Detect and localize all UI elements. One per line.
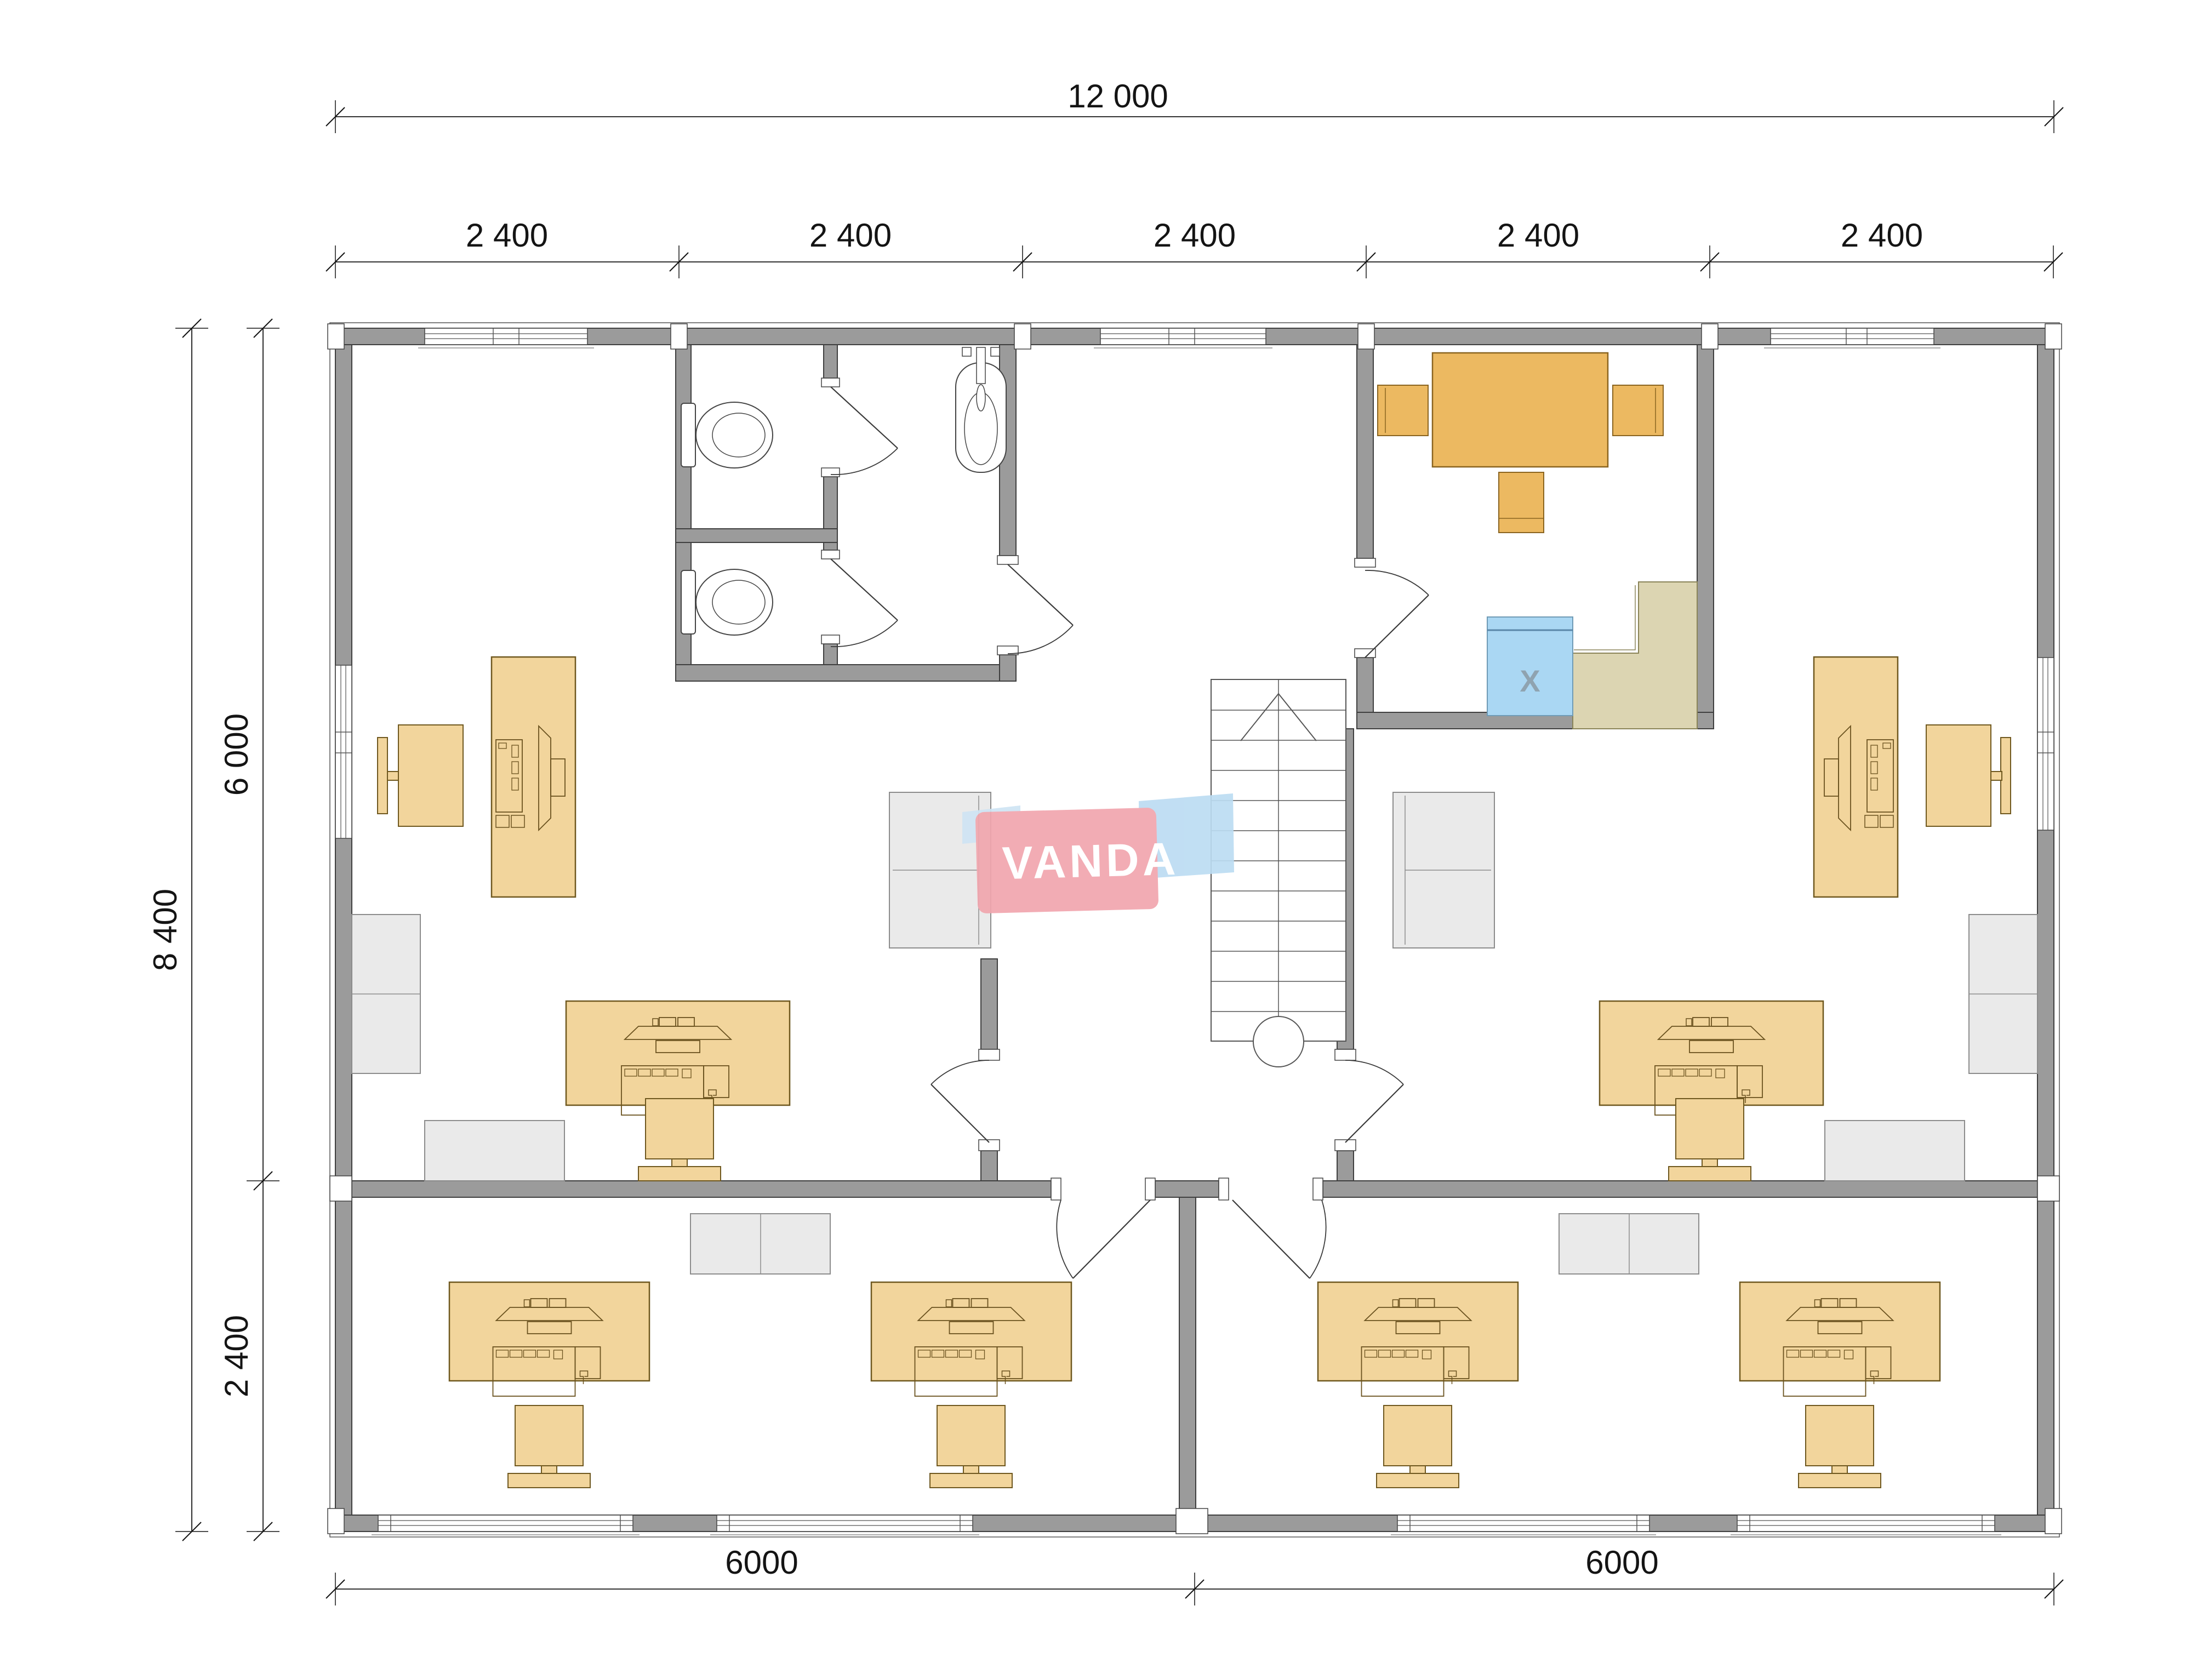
door-jamb xyxy=(997,556,1018,564)
dim-label: 2 400 xyxy=(1841,217,1923,254)
column xyxy=(1176,1508,1208,1534)
sideboard-bottom-left xyxy=(690,1214,830,1274)
window-top-3 xyxy=(1771,328,1934,345)
wall-bottom-divider xyxy=(1179,1197,1196,1515)
wall-wc-bottom xyxy=(676,665,1016,681)
window-right xyxy=(2037,658,2054,830)
window-bottom-1 xyxy=(378,1515,633,1532)
door-jamb xyxy=(1313,1178,1323,1200)
desk-bottomleft-2 xyxy=(871,1282,1071,1381)
door-wc-stall-2 xyxy=(831,559,898,647)
stairs-layer xyxy=(1211,679,1346,1067)
meeting-chair xyxy=(1499,472,1544,533)
window-bottom-3 xyxy=(1391,1515,1656,1535)
kitchen-counter-edge xyxy=(1574,585,1635,650)
door-hall-right xyxy=(1345,1060,1403,1142)
chair-right-desk xyxy=(1926,725,2011,826)
toilet-1 xyxy=(681,402,773,468)
door-swing-arc xyxy=(1345,1060,1403,1084)
door-jamb xyxy=(1145,1178,1155,1200)
chair-seat xyxy=(398,725,463,826)
window-bottom-4 xyxy=(1737,1515,1995,1532)
desk-bottomright-2 xyxy=(1740,1282,1940,1381)
wall-wc-stall-divider xyxy=(676,529,837,542)
window-top-2 xyxy=(1100,328,1266,345)
chair-mid-right xyxy=(1669,1099,1751,1181)
chair-bottomright-1 xyxy=(1377,1405,1459,1488)
wall-hall-right-lower xyxy=(1337,1151,1354,1181)
staircase xyxy=(1211,679,1346,1067)
dim-label: 12 000 xyxy=(1068,78,1168,115)
door-swing-arc xyxy=(931,1060,989,1084)
door-leaf xyxy=(1073,1200,1150,1278)
wall-exterior-left xyxy=(335,345,352,1515)
desk-bottomright-1 xyxy=(1318,1282,1518,1381)
dim-label: 2 400 xyxy=(218,1315,255,1397)
window-left xyxy=(335,665,352,838)
desk-mid-right xyxy=(1600,1001,1823,1105)
door-jamb xyxy=(979,1049,1000,1060)
desk-bottomleft-2 xyxy=(871,1282,1071,1396)
chair-seat xyxy=(1926,725,1991,826)
window-right xyxy=(2037,658,2054,830)
chair-backrest xyxy=(378,738,387,814)
sideboard-mid-right xyxy=(1825,1121,1965,1181)
dim-label: 6 000 xyxy=(218,713,255,796)
window-bottom-4 xyxy=(1731,1515,2001,1535)
chair-bottomright-2 xyxy=(1799,1405,1881,1488)
desk-mid-right xyxy=(1600,1001,1823,1115)
dim-label: 8 400 xyxy=(147,889,184,971)
door-hall-left xyxy=(931,1060,989,1142)
window-left xyxy=(335,665,352,838)
desk-mid-left xyxy=(566,1001,790,1115)
wall-hall-left-lower xyxy=(981,1151,997,1181)
wall-wc-partition-1 xyxy=(824,345,837,378)
chair-seat xyxy=(1806,1405,1874,1466)
sideboard-bottom-right xyxy=(1559,1214,1699,1274)
sideboard-mid-left xyxy=(425,1121,564,1181)
floor-plan-canvas: X VANDA 12 0002 4002 4002 4002 4002 4008… xyxy=(0,0,2192,1680)
column xyxy=(2045,324,2062,349)
armchair-lounge-right xyxy=(1393,792,1494,948)
door-jamb xyxy=(979,1140,1000,1151)
door-leaf xyxy=(1345,1084,1403,1142)
appliance-mark: X xyxy=(1520,664,1540,698)
door-jamb xyxy=(1219,1178,1229,1200)
door-wc-stall-1 xyxy=(831,387,898,475)
chair-seat xyxy=(1676,1099,1744,1159)
chair-bottomleft-2 xyxy=(930,1405,1012,1488)
toilet-bowl xyxy=(696,569,773,635)
column xyxy=(2045,1508,2062,1534)
wall-mid-right xyxy=(1323,1181,2037,1197)
door-meeting-room xyxy=(1365,570,1429,658)
column xyxy=(1014,324,1031,349)
door-jamb xyxy=(1355,558,1375,567)
toilet-2 xyxy=(681,569,773,635)
cabinet-left-wall xyxy=(352,915,420,1073)
chair-seat xyxy=(1384,1405,1452,1466)
wall-meeting-right xyxy=(1697,345,1714,729)
chair-backrest xyxy=(508,1473,590,1488)
chair-backrest xyxy=(1377,1473,1459,1488)
door-swing-arc xyxy=(831,620,898,647)
sink-spout xyxy=(977,385,985,411)
chair-left-desk xyxy=(378,725,463,826)
toilet-tank xyxy=(681,570,695,634)
door-jamb xyxy=(1051,1178,1061,1200)
door-entrance-right xyxy=(1232,1200,1326,1278)
sink-faucet xyxy=(977,347,985,384)
window-top-2 xyxy=(1094,328,1272,348)
door-jamb xyxy=(821,550,840,559)
door-jamb xyxy=(821,635,840,644)
wall-exterior-right xyxy=(2037,345,2054,1515)
sideboard-mid-right xyxy=(1825,1121,1965,1181)
door-leaf xyxy=(1365,595,1429,658)
door-jamb xyxy=(1335,1140,1356,1151)
door-swing-arc xyxy=(1365,570,1429,595)
column xyxy=(1358,324,1374,349)
wall-mid-left xyxy=(352,1181,1051,1197)
desk-mid-left xyxy=(566,1001,790,1105)
window-bottom-2 xyxy=(717,1515,973,1532)
dim-label: 2 400 xyxy=(466,217,548,254)
chair-backrest xyxy=(1669,1167,1751,1181)
meeting-table xyxy=(1432,353,1608,467)
chair-backrest xyxy=(1799,1473,1881,1488)
chair-stem xyxy=(387,772,399,780)
appliance-blue: X xyxy=(1487,617,1573,716)
window-top-1 xyxy=(418,328,594,348)
column xyxy=(330,1176,352,1201)
desk-left-vertical xyxy=(492,657,575,897)
sideboard-mid-left xyxy=(425,1121,564,1181)
toilet-tank xyxy=(681,403,695,467)
door-swing-arc xyxy=(1057,1200,1073,1278)
door-leaf xyxy=(1232,1200,1310,1278)
toilet-bowl xyxy=(696,402,773,468)
window-top-3 xyxy=(1764,328,1940,348)
door-entrance-left xyxy=(1057,1200,1150,1278)
dim-label: 6000 xyxy=(725,1544,798,1581)
desk-bottomleft-1 xyxy=(449,1282,649,1381)
column xyxy=(328,324,344,349)
desk-bottomright-1 xyxy=(1318,1282,1518,1396)
sink-tap-handle xyxy=(991,347,1000,356)
sink xyxy=(956,347,1006,472)
window-top-1 xyxy=(425,328,587,345)
chair-backrest xyxy=(930,1473,1012,1488)
desk-bottomleft-1 xyxy=(449,1282,649,1396)
kitchen-counter xyxy=(1573,582,1697,729)
chair-mid-left xyxy=(638,1099,721,1181)
dim-label: 2 400 xyxy=(1497,217,1579,254)
desk-right-vertical xyxy=(1814,657,1898,897)
chair-seat xyxy=(937,1405,1005,1466)
meeting-room-layer: X xyxy=(1378,353,1697,729)
door-jamb xyxy=(821,378,840,387)
window-bottom-1 xyxy=(372,1515,640,1535)
vanda-watermark: VANDA xyxy=(962,793,1234,913)
dim-label: 2 400 xyxy=(1154,217,1236,254)
meeting-chair-left xyxy=(1378,385,1428,436)
desk-left-vertical xyxy=(492,657,575,897)
door-jamb xyxy=(1335,1049,1356,1060)
wall-mid-center xyxy=(1155,1181,1219,1197)
wall-meeting-left-upper xyxy=(1357,345,1373,558)
column xyxy=(671,324,687,349)
wall-wc-lobby-right-lower xyxy=(1000,655,1016,681)
vanda-logo: VANDA xyxy=(962,793,1234,913)
chair-seat xyxy=(515,1405,583,1466)
column xyxy=(328,1508,344,1534)
window-bottom-3 xyxy=(1397,1515,1649,1532)
wall-hall-left-upper xyxy=(981,959,997,1049)
meeting-chair-bottom xyxy=(1499,472,1544,533)
floor-plan-drawing: X VANDA 12 0002 4002 4002 4002 4002 4008… xyxy=(0,0,2192,1680)
sanitary-fixtures-layer xyxy=(681,347,1006,635)
meeting-table xyxy=(1432,353,1608,467)
column xyxy=(2037,1176,2059,1201)
desk-bottomright-2 xyxy=(1740,1282,1940,1396)
cabinet-right-wall xyxy=(1969,915,2037,1073)
stair-newel-circle xyxy=(1253,1016,1304,1067)
desk-right-vertical xyxy=(1814,657,1898,897)
door-swing-arc xyxy=(831,448,898,475)
sink-tap-handle xyxy=(962,347,971,356)
door-swing-arc xyxy=(1310,1200,1326,1278)
door-leaf xyxy=(831,387,898,448)
chair-seat xyxy=(646,1099,713,1159)
chair-backrest xyxy=(638,1167,721,1181)
dim-label: 6000 xyxy=(1585,1544,1658,1581)
door-leaf xyxy=(931,1084,989,1142)
dim-label: 2 400 xyxy=(809,217,892,254)
door-leaf xyxy=(1008,564,1073,625)
chair-stem xyxy=(1990,772,2002,780)
door-leaf xyxy=(831,559,898,620)
door-jamb xyxy=(821,468,840,477)
logo-text: VANDA xyxy=(1002,833,1180,889)
door-wc-lobby xyxy=(1008,564,1073,654)
meeting-chair-right xyxy=(1613,385,1663,436)
column xyxy=(1702,324,1718,349)
chair-bottomleft-1 xyxy=(508,1405,590,1488)
window-bottom-2 xyxy=(710,1515,979,1535)
